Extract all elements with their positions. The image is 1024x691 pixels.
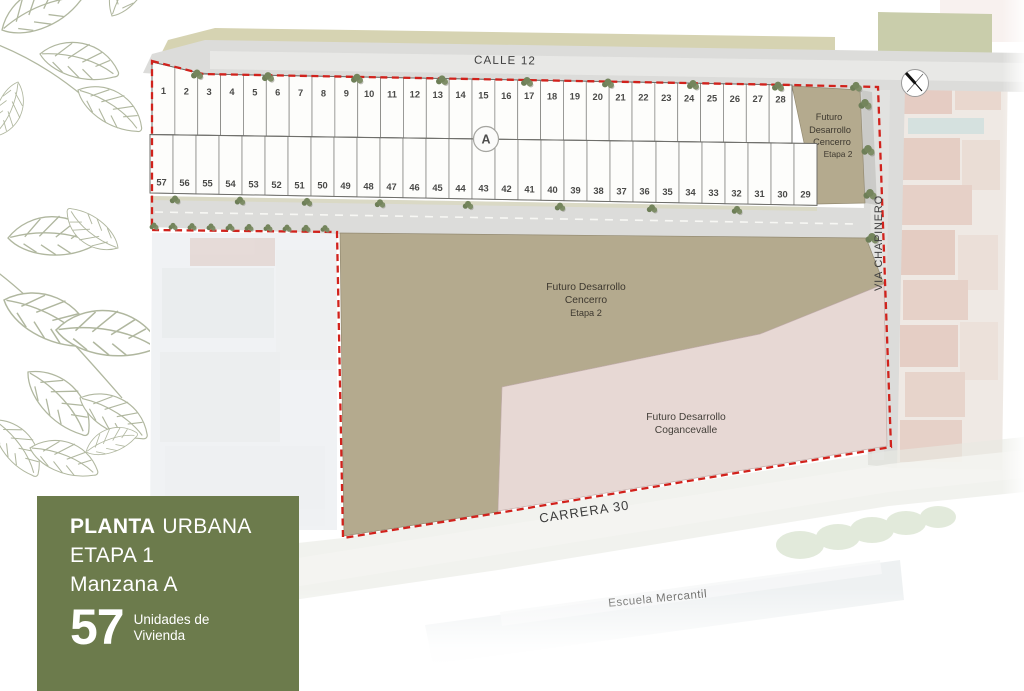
lot-number: 35 xyxy=(662,187,672,197)
lot-number: 42 xyxy=(501,184,511,194)
lot-cell xyxy=(221,74,244,136)
lot-number: 6 xyxy=(275,88,280,98)
block-marker: A xyxy=(474,127,499,152)
lot-cell xyxy=(495,80,518,140)
lot-number: 12 xyxy=(410,90,420,100)
lot-cell xyxy=(678,83,701,142)
lot-number: 50 xyxy=(317,181,327,191)
lot-number: 33 xyxy=(708,188,718,198)
lot-number: 20 xyxy=(593,92,603,102)
lot-number: 55 xyxy=(202,179,212,189)
lot-number: 25 xyxy=(707,94,717,104)
street-label-via-chapinero: VIA CHAPINERO xyxy=(873,195,885,291)
lot-number: 36 xyxy=(639,187,649,197)
panel-title-light: URBANA xyxy=(162,515,251,538)
lot-cell xyxy=(518,80,541,140)
lot-number: 40 xyxy=(547,185,557,195)
lot-number: 28 xyxy=(775,95,785,105)
lot-number: 54 xyxy=(225,179,236,189)
lot-cell xyxy=(609,82,632,141)
lot-cell xyxy=(586,81,609,141)
parcel-label: Etapa 2 xyxy=(824,149,853,159)
lot-number: 1 xyxy=(161,86,166,96)
lot-number: 24 xyxy=(684,93,695,103)
lot-number: 16 xyxy=(501,91,511,101)
info-panel: PLANTAURBANA ETAPA 1 Manzana A 57 Unidad… xyxy=(37,496,299,691)
lot-cell xyxy=(198,73,221,136)
lot-number: 49 xyxy=(340,181,350,191)
lot-cell xyxy=(655,82,678,141)
lot-number: 53 xyxy=(248,179,258,189)
lot-number: 13 xyxy=(433,90,443,100)
lot-number: 22 xyxy=(638,93,648,103)
lot-cell xyxy=(403,78,426,139)
parcel-label: Futuro Desarrollo xyxy=(546,282,626,293)
lot-number: 34 xyxy=(685,188,696,198)
lot-number: 37 xyxy=(616,186,626,196)
lot-cell xyxy=(289,76,312,137)
lot-number: 52 xyxy=(271,180,281,190)
parcel-label: Etapa 2 xyxy=(570,308,602,318)
lot-number: 3 xyxy=(207,87,212,97)
parcel-label: Futuro Desarrollo xyxy=(646,412,726,423)
lot-cell xyxy=(381,77,404,138)
lot-number: 31 xyxy=(754,189,764,199)
lot-cell xyxy=(541,80,564,140)
lot-cell xyxy=(243,75,266,136)
units-label-line2: Vivienda xyxy=(134,628,210,643)
lot-number: 14 xyxy=(455,90,466,100)
lot-number: 29 xyxy=(800,190,810,200)
lot-cell xyxy=(746,84,769,143)
lot-number: 39 xyxy=(570,185,580,195)
lot-cell xyxy=(632,82,655,141)
lot-cell xyxy=(563,81,586,141)
units-count: 57 xyxy=(70,604,124,650)
lot-number: 15 xyxy=(478,91,488,101)
lot-cell xyxy=(701,83,724,142)
panel-units: 57 Unidades de Vivienda xyxy=(70,604,289,650)
block-marker-label: A xyxy=(481,133,490,147)
lot-number: 10 xyxy=(364,89,374,99)
parcel-label: Cogancevalle xyxy=(655,425,718,436)
lot-number: 41 xyxy=(524,185,534,195)
lot-number: 30 xyxy=(777,189,787,199)
panel-manzana: Manzana A xyxy=(70,571,289,600)
lot-number: 5 xyxy=(252,87,257,97)
lot-number: 51 xyxy=(294,180,304,190)
panel-title-bold: PLANTA xyxy=(70,515,155,538)
lot-cell xyxy=(723,84,746,143)
lot-cell xyxy=(312,76,335,137)
lot-number: 26 xyxy=(730,94,740,104)
lot-number: 43 xyxy=(478,184,488,194)
units-label-line1: Unidades de xyxy=(134,612,210,627)
street-label-calle12: CALLE 12 xyxy=(474,55,536,68)
parcel-label: Futuro xyxy=(816,112,843,122)
lot-number: 2 xyxy=(184,87,189,97)
parcel-label: Cencerro xyxy=(813,137,851,147)
lot-number: 45 xyxy=(432,183,442,193)
lot-cell xyxy=(769,85,792,144)
lot-cell xyxy=(266,75,289,136)
lot-number: 18 xyxy=(547,91,557,101)
compass-icon xyxy=(902,70,929,97)
lot-number: 4 xyxy=(229,87,235,97)
lot-cell xyxy=(335,77,358,138)
panel-title: PLANTAURBANA xyxy=(70,513,289,542)
lot-number: 46 xyxy=(409,182,419,192)
lot-number: 19 xyxy=(570,92,580,102)
lot-number: 56 xyxy=(179,178,189,188)
lot-number: 57 xyxy=(156,178,166,188)
lot-number: 11 xyxy=(387,89,397,99)
lot-cell xyxy=(426,78,449,138)
parcel-label: Desarrollo xyxy=(809,125,851,135)
parcel-label: Cencerro xyxy=(565,295,608,306)
lot-number: 7 xyxy=(298,88,303,98)
lot-number: 9 xyxy=(344,89,349,99)
lot-cell xyxy=(152,62,175,135)
lot-number: 38 xyxy=(593,186,603,196)
lot-number: 17 xyxy=(524,91,534,101)
lot-number: 44 xyxy=(455,183,466,193)
lot-number: 27 xyxy=(753,94,763,104)
lot-number: 8 xyxy=(321,88,326,98)
lot-cell xyxy=(358,77,381,138)
lot-number: 32 xyxy=(731,188,741,198)
panel-etapa: ETAPA 1 xyxy=(70,542,289,571)
lot-number: 23 xyxy=(661,93,671,103)
lot-number: 48 xyxy=(363,182,373,192)
lot-number: 21 xyxy=(615,92,625,102)
lot-cell xyxy=(449,79,472,139)
page: Futuro Desarrollo Cencerro Etapa 2 Futur… xyxy=(0,0,1024,691)
units-label: Unidades de Vivienda xyxy=(134,612,210,643)
lot-number: 47 xyxy=(386,182,396,192)
